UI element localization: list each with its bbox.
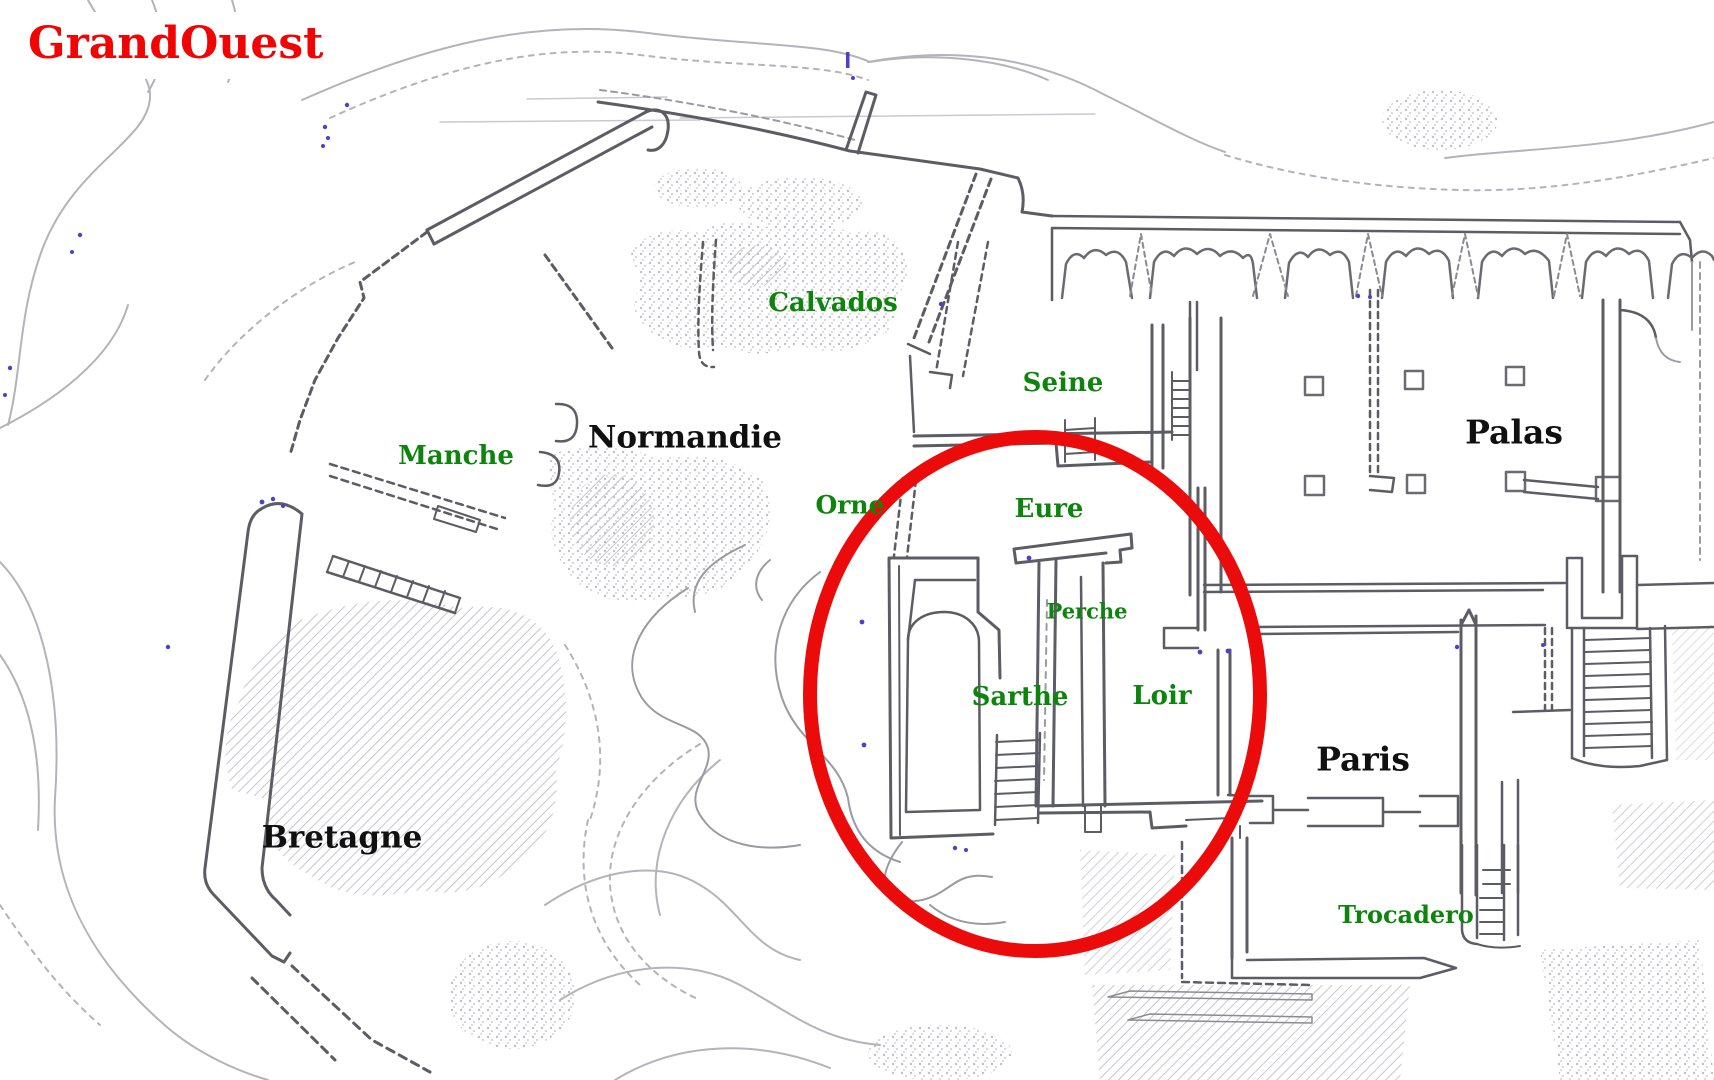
label-orne: Orne [815,493,884,518]
label-bretagne: Bretagne [262,823,423,854]
label-perche: Perche [1046,601,1127,622]
map-canvas: GrandOuest Calvados Seine Manche Normand… [0,0,1714,1080]
label-manche: Manche [398,443,514,469]
label-sarthe: Sarthe [972,684,1069,710]
label-normandie: Normandie [588,423,782,454]
label-paris: Paris [1316,743,1410,776]
label-trocadero: Trocadero [1338,903,1474,927]
label-loir: Loir [1132,683,1191,709]
label-eure: Eure [1015,496,1084,522]
fortification-walls [205,90,1714,1072]
map-title: GrandOuest [14,12,339,79]
label-palas: Palas [1465,416,1563,449]
label-calvados: Calvados [768,290,898,316]
label-seine: Seine [1023,370,1104,396]
